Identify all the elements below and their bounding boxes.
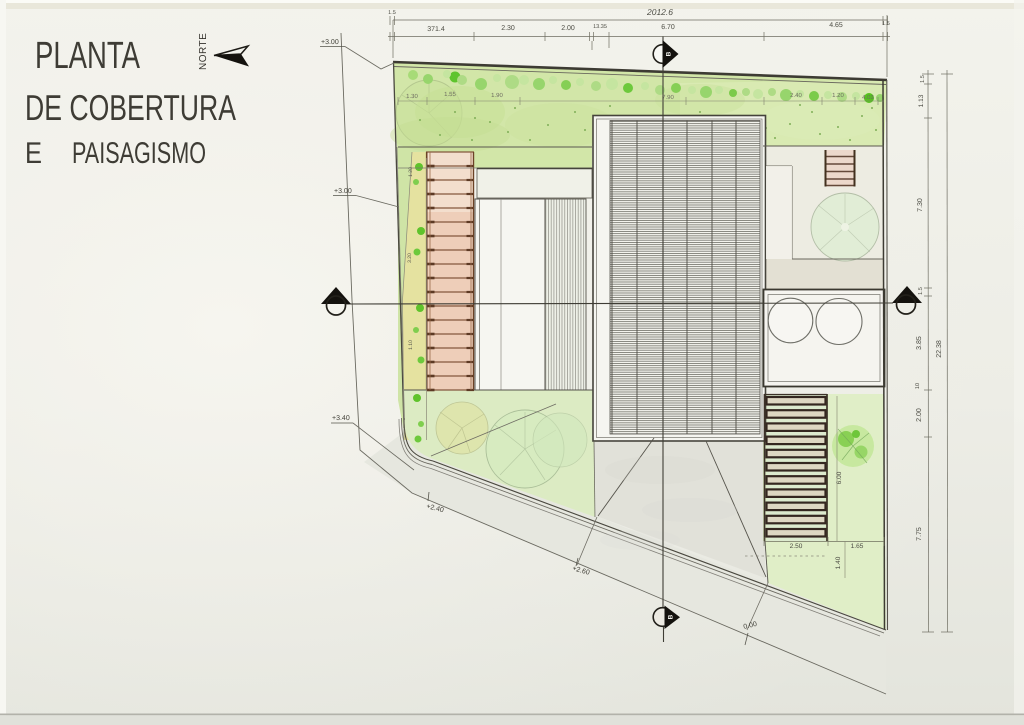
svg-text:2.00: 2.00 <box>561 25 575 32</box>
svg-text:+3.00: +3.00 <box>321 39 339 46</box>
svg-text:1.5: 1.5 <box>388 10 396 16</box>
svg-text:1.13: 1.13 <box>918 94 925 107</box>
svg-text:PAISAGISMO: PAISAGISMO <box>72 137 206 170</box>
svg-text:+3.00: +3.00 <box>334 188 352 195</box>
svg-text:1.40: 1.40 <box>835 556 842 569</box>
svg-text:DE COBERTURA: DE COBERTURA <box>25 87 236 128</box>
svg-text:1.10: 1.10 <box>408 340 414 350</box>
svg-text:2.00: 2.00 <box>916 408 923 422</box>
svg-text:3.85: 3.85 <box>916 336 923 350</box>
svg-text:4.03: 4.03 <box>862 94 874 101</box>
svg-text:2.40: 2.40 <box>790 92 802 99</box>
svg-text:2.50: 2.50 <box>790 543 803 550</box>
svg-text:B: B <box>666 51 673 56</box>
svg-text:A: A <box>333 298 338 305</box>
svg-text:7.90: 7.90 <box>662 94 674 101</box>
svg-text:1.20: 1.20 <box>832 92 844 99</box>
svg-text:1.90: 1.90 <box>491 92 503 99</box>
svg-text:4.65: 4.65 <box>829 22 843 29</box>
svg-text:E: E <box>25 137 42 170</box>
svg-text:1.5: 1.5 <box>918 287 924 295</box>
svg-text:B: B <box>668 614 675 619</box>
svg-text:1.5: 1.5 <box>920 75 926 83</box>
svg-text:1.5: 1.5 <box>882 21 890 27</box>
svg-text:371.4: 371.4 <box>427 26 445 33</box>
svg-text:2012.6: 2012.6 <box>646 7 673 17</box>
svg-text:10: 10 <box>915 383 921 389</box>
svg-text:1.65: 1.65 <box>851 543 864 550</box>
svg-text:6.70: 6.70 <box>661 24 675 31</box>
svg-text:PLANTA: PLANTA <box>35 35 140 77</box>
svg-text:NORTE: NORTE <box>198 33 209 70</box>
svg-text:7.30: 7.30 <box>917 198 924 212</box>
svg-text:1.55: 1.55 <box>444 91 456 98</box>
svg-text:6.00: 6.00 <box>836 471 843 484</box>
svg-text:13.35: 13.35 <box>593 24 607 30</box>
svg-text:22.38: 22.38 <box>936 340 943 358</box>
svg-text:3.20: 3.20 <box>407 253 413 263</box>
svg-text:7.75: 7.75 <box>916 527 923 541</box>
svg-text:1.20: 1.20 <box>408 167 414 177</box>
svg-text:1.30: 1.30 <box>406 93 418 100</box>
svg-text:+3.40: +3.40 <box>332 415 350 422</box>
svg-text:2.30: 2.30 <box>501 25 515 32</box>
svg-text:A: A <box>903 297 908 304</box>
